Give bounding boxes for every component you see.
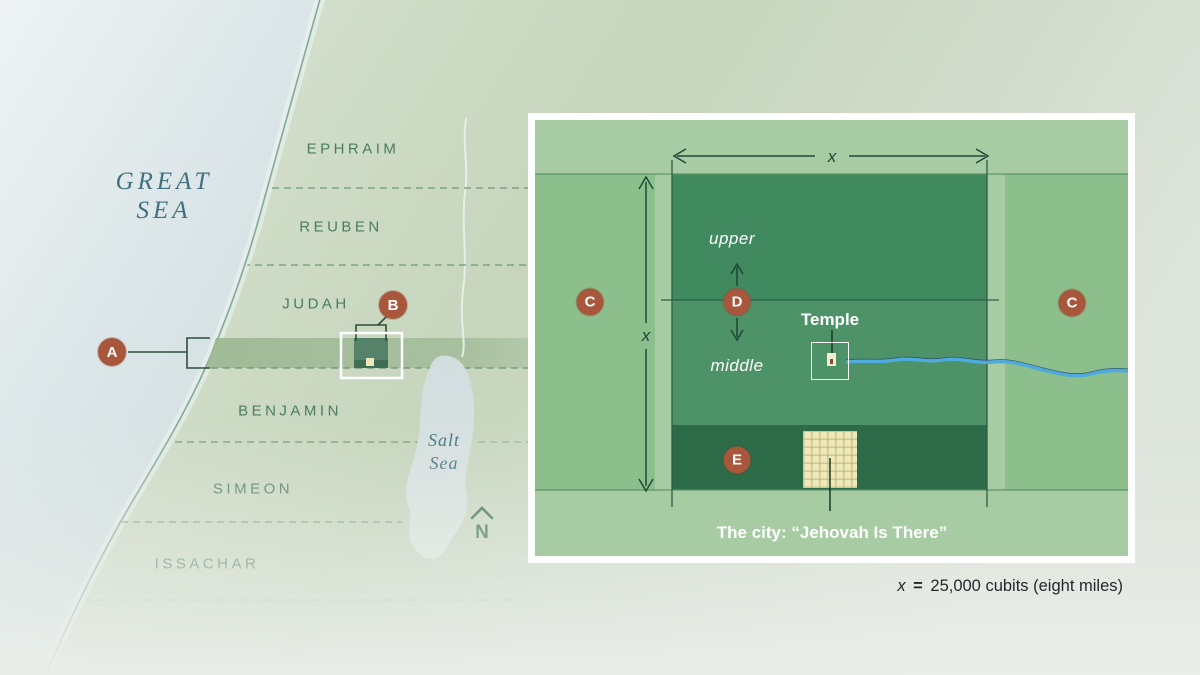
dim-x-vertical: x [642,326,651,346]
allotment-diagram: x x upper middle Temple The city: “Jehov… [535,120,1128,556]
legend-eq: = [910,577,926,595]
marker-e: E [724,447,751,474]
tribe-label-ephraim: EPHRAIM [307,141,400,158]
tribe-label-issachar: ISSACHAR [155,556,260,573]
marker-d: D [724,289,751,316]
marker-c-west: C [577,289,604,316]
temple-icon [827,353,836,366]
marker-c-east: C [1059,290,1086,317]
marker-b: B [379,291,407,319]
tribe-label-simeon: SIMEON [213,481,293,498]
marker-a: A [98,338,126,366]
dim-x-horizontal: x [828,147,837,167]
salt-sea-label: Salt Sea [428,429,460,475]
tribe-label-judah: JUDAH [282,296,350,313]
city-label: The city: “Jehovah Is There” [717,523,948,543]
illustration-canvas: GREAT SEA EPHRAIM REUBEN JUDAH BENJAMIN … [0,0,1200,675]
allotment-inset: x x upper middle Temple The city: “Jehov… [528,113,1135,563]
north-label: N [475,522,489,544]
inset-linework [535,120,1128,556]
upper-label: upper [709,229,755,249]
legend-x: x [897,577,905,595]
tribe-label-reuben: REUBEN [299,219,383,236]
legend-text: 25,000 cubits (eight miles) [930,577,1123,595]
middle-label: middle [710,356,763,376]
great-sea-label: GREAT SEA [116,167,213,225]
tribe-label-benjamin: BENJAMIN [238,403,342,420]
scale-legend: x = 25,000 cubits (eight miles) [897,577,1123,596]
temple-label: Temple [801,310,859,330]
